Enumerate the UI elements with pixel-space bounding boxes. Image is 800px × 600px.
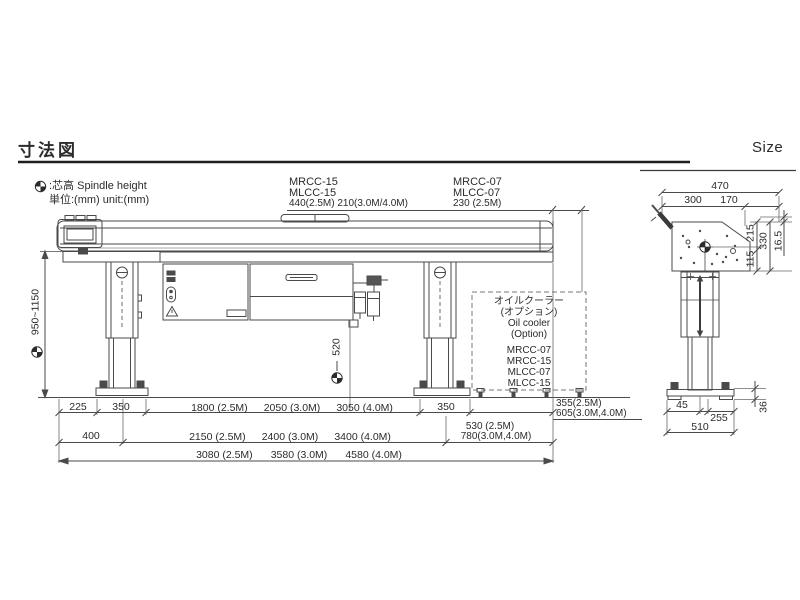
spindle-height-icon xyxy=(332,373,342,383)
dim-variant: 3080 (2.5M) xyxy=(196,449,253,461)
oil-cooler-label-en: Oil cooler xyxy=(474,318,584,329)
dim-row2-400: 400 xyxy=(82,431,100,442)
dim-row1-span-variants: 1800 (2.5M) 2050 (3.0M) 3050 (4.0M) xyxy=(191,402,393,414)
oil-cooler-option-jp: (オプション) xyxy=(474,307,584,318)
page-title: 寸法図 xyxy=(18,136,78,161)
dim-side-45: 45 xyxy=(676,400,688,411)
legend: :芯高 Spindle height 単位:(mm) unit:(mm) xyxy=(34,179,149,207)
dim-row1-350-left: 350 xyxy=(112,402,130,413)
dim-row1-350-right: 350 xyxy=(437,402,455,413)
dim-variant: 2400 (3.0M) xyxy=(262,431,319,443)
technical-drawing-lineart xyxy=(0,0,800,600)
model-dimension: 440(2.5M) 210(3.0M/4.0M) xyxy=(289,199,408,210)
dim-variant: 3400 (4.0M) xyxy=(334,431,391,443)
dim-side-300: 300 xyxy=(684,195,702,206)
model-group-07: MRCC-07 MLCC-07 230 (2.5M) xyxy=(453,177,502,210)
dim-height-range: 950~1150 xyxy=(31,289,42,335)
dim-row1-overhang-34: 605(3.0M,4.0M) xyxy=(556,409,627,420)
oil-cooler-model: MRCC-07 xyxy=(474,345,584,356)
dim-row2-span-variants: 2150 (2.5M) 2400 (3.0M) 3400 (4.0M) xyxy=(189,431,391,443)
dim-variant: 3050 (4.0M) xyxy=(336,402,393,414)
dim-variant: 1800 (2.5M) xyxy=(191,402,248,414)
model-group-15: MRCC-15 MLCC-15 440(2.5M) 210(3.0M/4.0M) xyxy=(289,177,408,210)
dim-side-255: 255 xyxy=(710,413,728,424)
oil-cooler-option-en: (Option) xyxy=(474,329,584,340)
dim-side-215: 215 xyxy=(746,224,757,242)
legend-unit-label: 単位:(mm) unit:(mm) xyxy=(34,193,149,207)
spindle-height-icon xyxy=(34,180,47,193)
dim-side-115: 115 xyxy=(746,251,757,268)
dimension-drawing-page: 寸法図 Size :芯高 Spindle height 単位:(mm) unit… xyxy=(0,0,800,600)
oil-cooler-label-jp: オイルクーラー xyxy=(474,296,584,307)
dim-side-510: 510 xyxy=(691,422,709,433)
dim-variant: 2050 (3.0M) xyxy=(264,402,321,414)
legend-spindle-label: :芯高 Spindle height xyxy=(49,179,147,193)
page-title-en: Size xyxy=(752,139,783,156)
dim-row1-225: 225 xyxy=(69,402,87,413)
dim-side-330: 330 xyxy=(759,232,770,250)
dim-side-170: 170 xyxy=(720,195,738,206)
spindle-height-icon xyxy=(700,242,710,252)
dim-variant: 3580 (3.0M) xyxy=(271,449,328,461)
model-dimension: 230 (2.5M) xyxy=(453,199,502,210)
dim-center-height: 520 xyxy=(332,338,343,356)
dim-side-16-5: 16.5 xyxy=(774,231,785,251)
oil-cooler-option-box: オイルクーラー (オプション) Oil cooler (Option) MRCC… xyxy=(474,296,584,389)
oil-cooler-model: MLCC-07 xyxy=(474,367,584,378)
oil-cooler-model: MLCC-15 xyxy=(474,378,584,389)
dim-side-470: 470 xyxy=(711,181,729,192)
dim-row3-total-variants: 3080 (2.5M) 3580 (3.0M) 4580 (4.0M) xyxy=(196,449,402,461)
dim-row2-right-34: 780(3.0M,4.0M) xyxy=(461,432,532,443)
oil-cooler-model: MRCC-15 xyxy=(474,356,584,367)
dim-variant: 4580 (4.0M) xyxy=(345,449,402,461)
dim-side-36: 36 xyxy=(759,401,770,413)
spindle-height-icon xyxy=(32,347,42,357)
dim-variant: 2150 (2.5M) xyxy=(189,431,246,443)
